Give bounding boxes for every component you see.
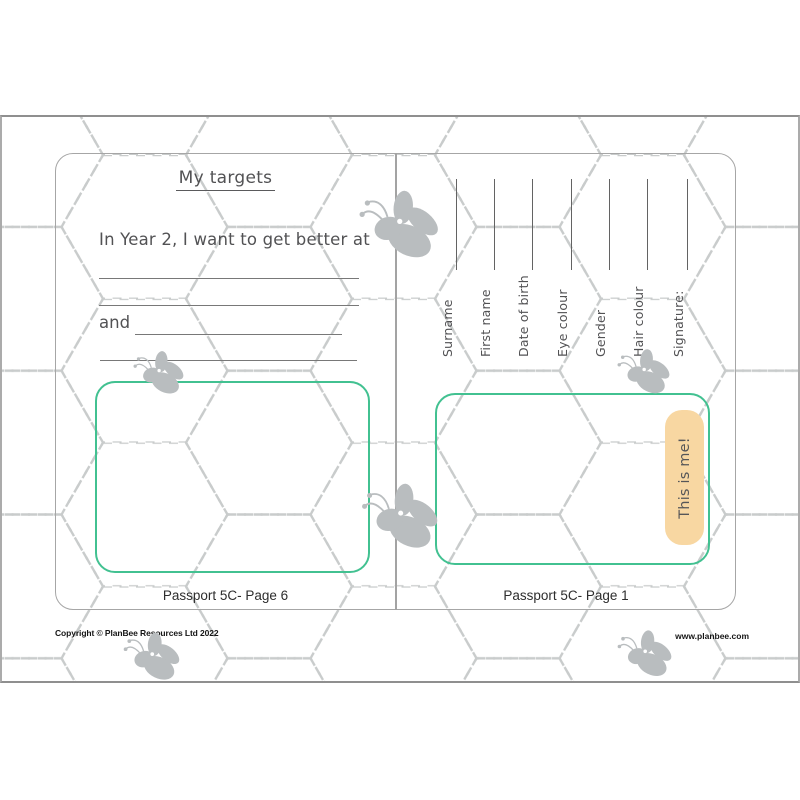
passport-worksheet-page: My targets In Year 2, I want to get bett… [0,115,800,683]
field-line-surname [456,179,457,270]
bee-icon [130,350,186,399]
field-label-signature: Signature: [671,290,686,357]
page-title: My targets [176,168,276,191]
field-label-gender: Gender [593,310,608,357]
field-label-date-of-birth: Date of birth [516,275,531,357]
field-label-surname: Surname [440,299,455,357]
field-label-hair-colour: Hair colour [631,286,646,357]
bee-icon [614,629,674,682]
field-line-eye-colour [571,179,572,270]
left-page-header: My targets [55,168,396,191]
bee-icon [357,482,441,556]
this-is-me-label: This is me! [677,437,693,519]
field-label-first-name: First name [478,289,493,357]
target-prompt-text: In Year 2, I want to get better at [99,230,389,249]
bee-icon [354,189,442,266]
right-page-caption: Passport 5C- Page 1 [396,588,736,603]
field-line-gender [609,179,610,270]
field-label-eye-colour: Eye colour [555,289,570,357]
bee-icon [614,348,672,399]
drawing-box [95,381,370,573]
worksheet-screenshot: { "document": { "left_page": { "title": … [0,0,800,800]
and-label: and [99,313,130,332]
left-page-caption: Passport 5C- Page 6 [55,588,396,603]
this-is-me-tab: This is me! [665,410,704,545]
writing-line-3 [135,334,342,335]
bee-icon [120,631,182,686]
writing-line-2 [99,305,359,306]
field-line-hair-colour [647,179,648,270]
writing-line-1 [99,278,359,279]
field-line-first-name [494,179,495,270]
field-line-date-of-birth [532,179,533,270]
field-line-signature [687,179,688,270]
